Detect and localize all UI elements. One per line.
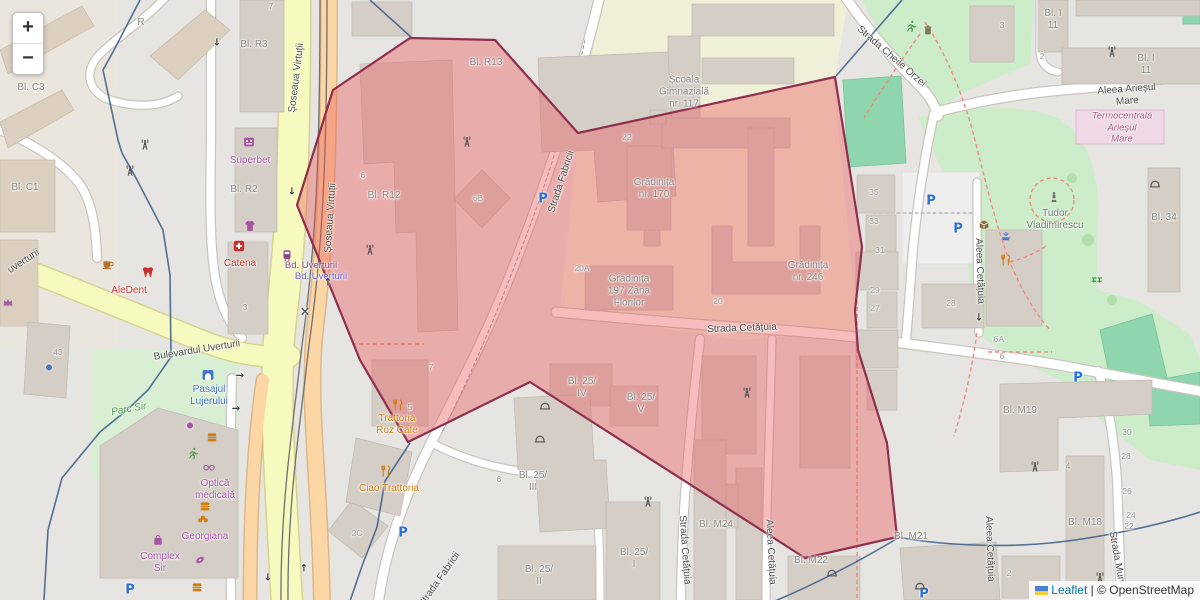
restaurant-icon [380, 465, 393, 478]
restaurant-icon [392, 399, 405, 412]
jeweller-icon [2, 296, 15, 309]
oneway-arrow-icon: ↑ [324, 278, 332, 289]
parcel-locker-icon [978, 219, 991, 232]
casino-icon [243, 136, 256, 149]
oneway-arrow-icon: ↓ [975, 313, 983, 324]
antenna-icon [1106, 46, 1119, 59]
leaflet-link[interactable]: Leaflet [1051, 583, 1087, 597]
antenna-icon [124, 165, 137, 178]
antenna-icon [642, 496, 655, 509]
fast-food-icon [206, 431, 219, 444]
oneway-arrow-icon: ↓ [213, 38, 221, 49]
ukraine-flag-icon [1035, 586, 1048, 595]
map-icons-layer: PPPPPPP×↓↓↓↓↑↑→→●● [0, 0, 1200, 600]
fitness-icon [187, 447, 200, 460]
fountain-icon [1000, 231, 1013, 244]
oneway-arrow-icon: → [236, 371, 244, 382]
optician-icon [203, 461, 216, 474]
bakery-icon [197, 513, 210, 526]
arch-icon [914, 579, 927, 592]
dentist-icon [142, 266, 155, 279]
picnic-icon [1091, 272, 1104, 285]
waste-basket-icon [922, 24, 935, 37]
fast-food-icon [191, 581, 204, 594]
zoom-out-button[interactable]: − [13, 44, 43, 74]
parking-icon: P [919, 587, 929, 600]
pharmacy-icon [233, 240, 246, 253]
parking-icon: P [398, 526, 408, 541]
map-canvas[interactable]: Șoseaua VirtuțiiȘoseaua VirtuțiiBulevard… [0, 0, 1200, 600]
oneway-arrow-icon: ↓ [288, 187, 296, 198]
antenna-icon [364, 244, 377, 257]
antenna-icon [1029, 461, 1042, 474]
cafe-icon [102, 258, 115, 271]
pastry-icon [194, 554, 207, 567]
parking-icon: P [926, 194, 936, 209]
tram-stop-icon [281, 249, 294, 262]
antenna-icon [139, 139, 152, 152]
zoom-control: + − [12, 12, 44, 75]
parking-icon: P [125, 583, 135, 598]
arch-icon [539, 399, 552, 412]
shop-bag-icon [152, 534, 165, 547]
restaurant-icon [1000, 254, 1013, 267]
oneway-arrow-icon: ↓ [264, 573, 272, 584]
attribution-separator: | [1087, 583, 1097, 597]
arch-icon [1149, 177, 1162, 190]
arch-icon [534, 432, 547, 445]
parking-icon: P [538, 192, 548, 207]
oneway-arrow-icon: ↑ [300, 564, 308, 575]
parking-icon: P [1073, 371, 1083, 386]
arch-icon [826, 566, 839, 579]
monument-icon [1048, 191, 1061, 204]
railway-crossing-icon: × [300, 305, 311, 320]
zoom-in-button[interactable]: + [13, 13, 43, 44]
antenna-icon [741, 387, 754, 400]
poi-dot-icon: ● [187, 421, 194, 430]
tunnel-icon [202, 369, 215, 382]
oneway-arrow-icon: → [232, 404, 240, 415]
clothes-shop-icon [244, 220, 257, 233]
antenna-icon [461, 136, 474, 149]
osm-link[interactable]: © OpenStreetMap [1097, 583, 1194, 597]
playground-icon [905, 20, 918, 33]
fast-food-icon [199, 500, 212, 513]
attribution: Leaflet | © OpenStreetMap [1029, 581, 1200, 600]
poi-dot-icon: ● [46, 363, 53, 372]
parking-icon: P [953, 222, 963, 237]
